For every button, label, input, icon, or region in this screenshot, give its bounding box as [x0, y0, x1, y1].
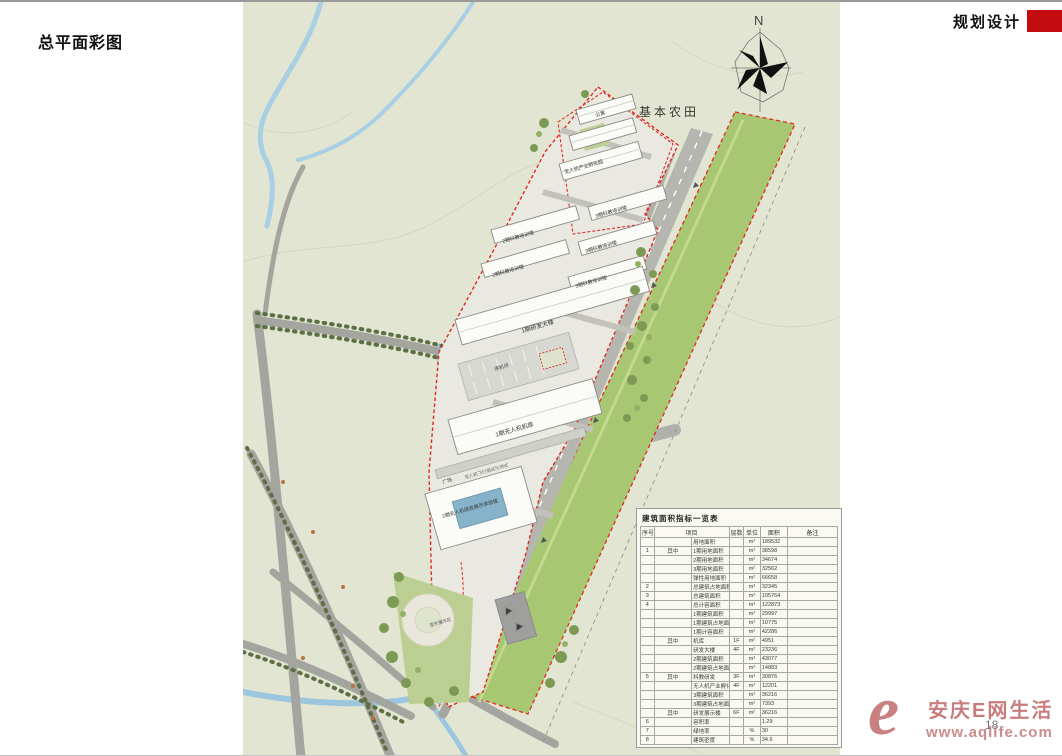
table-cell: [641, 556, 655, 565]
table-header: 序号项目层数单位面积备注: [641, 527, 838, 538]
table-cell: [654, 628, 692, 637]
table-cell: [729, 574, 744, 583]
table-cell: 建筑密度: [692, 736, 730, 745]
table-cell: [787, 565, 837, 574]
table-cell: 6: [641, 718, 655, 727]
table-cell: [654, 565, 692, 574]
table-cell: [654, 700, 692, 709]
page: 总平面彩图 规划设计: [0, 0, 1062, 756]
table-cell: 32345: [760, 583, 787, 592]
table-cell: [641, 700, 655, 709]
table-cell: [729, 718, 744, 727]
table-cell: 34.6: [760, 736, 787, 745]
table-cell: 1.29: [760, 718, 787, 727]
table-row: 1期计容面积m²42286: [641, 628, 838, 637]
table-cell: 4951: [760, 637, 787, 646]
table-cell: m²: [744, 610, 761, 619]
watermark: e 安庆E网生活 www.aqlife.com: [868, 686, 1062, 756]
table-cell: [654, 574, 692, 583]
table-row: 3期建筑占地面积m²7393: [641, 700, 838, 709]
table-cell: 绿地率: [692, 727, 730, 736]
table-cell: [729, 592, 744, 601]
table-cell: [729, 556, 744, 565]
red-accent-box: [1027, 10, 1062, 32]
table-cell: 1期建筑面积: [692, 610, 730, 619]
table-cell: 6F: [729, 709, 744, 718]
table-cell: [729, 727, 744, 736]
table-cell: 43077: [760, 655, 787, 664]
table-header-cell: 面积: [760, 527, 787, 538]
table-row: 用地面积m²189532: [641, 538, 838, 547]
table-cell: [641, 664, 655, 673]
table-cell: [641, 709, 655, 718]
table-cell: 29997: [760, 610, 787, 619]
table-row: 6容积率1.29: [641, 718, 838, 727]
table-cell: m²: [744, 583, 761, 592]
table-cell: m²: [744, 709, 761, 718]
table-cell: [641, 619, 655, 628]
table-cell: [654, 610, 692, 619]
table-cell: 总建筑面积: [692, 592, 730, 601]
table-cell: 36216: [760, 709, 787, 718]
table-cell: 34674: [760, 556, 787, 565]
table-row: 2期用地面积m²34674: [641, 556, 838, 565]
table-cell: [787, 655, 837, 664]
table-cell: m²: [744, 646, 761, 655]
table-row: 其中研发展示楼6Fm²36216: [641, 709, 838, 718]
table-cell: 7393: [760, 700, 787, 709]
table-cell: 105764: [760, 592, 787, 601]
table-cell: 4F: [729, 682, 744, 691]
table-cell: [654, 718, 692, 727]
table-cell: 14883: [760, 664, 787, 673]
table-cell: 总计容面积: [692, 601, 730, 610]
table-cell: 2期建筑面积: [692, 655, 730, 664]
table-cell: 容积率: [692, 718, 730, 727]
table-cell: [787, 727, 837, 736]
table-cell: [787, 682, 837, 691]
table-header-cell: 备注: [787, 527, 837, 538]
table-cell: m²: [744, 565, 761, 574]
header: 规划设计: [953, 10, 1062, 32]
table-cell: m²: [744, 682, 761, 691]
table-cell: 8: [641, 736, 655, 745]
table-cell: m²: [744, 574, 761, 583]
table-cell: [654, 664, 692, 673]
table-header-cell: 序号: [641, 527, 655, 538]
table-cell: m²: [744, 601, 761, 610]
table-cell: [654, 655, 692, 664]
table-cell: [729, 610, 744, 619]
table-cell: 其中: [654, 673, 692, 682]
table-header-cell: 层数: [729, 527, 744, 538]
table-cell: m²: [744, 592, 761, 601]
table-row: 3总建筑面积m²105764: [641, 592, 838, 601]
table-cell: [654, 736, 692, 745]
table-cell: 科教研发: [692, 673, 730, 682]
table-cell: m²: [744, 637, 761, 646]
table-cell: [654, 583, 692, 592]
table-cell: 38598: [760, 547, 787, 556]
table-cell: [787, 718, 837, 727]
table-cell: [787, 637, 837, 646]
table-cell: [787, 664, 837, 673]
table-row: 3期用地面积m²32562: [641, 565, 838, 574]
table-cell: [787, 673, 837, 682]
table-cell: [787, 601, 837, 610]
table-cell: 5: [641, 673, 655, 682]
table-cell: 1: [641, 547, 655, 556]
table-cell: [654, 538, 692, 547]
table-cell: 其中: [654, 637, 692, 646]
table-cell: [729, 565, 744, 574]
table-cell: 研发展示楼: [692, 709, 730, 718]
table-cell: m²: [744, 655, 761, 664]
table-cell: [729, 538, 744, 547]
table-cell: [654, 682, 692, 691]
table-row: 弹性用地面积m²66658: [641, 574, 838, 583]
table-cell: [787, 556, 837, 565]
table-cell: [729, 700, 744, 709]
table-cell: 弹性用地面积: [692, 574, 730, 583]
table-row: 2总建筑占地面积m²32345: [641, 583, 838, 592]
table-cell: 2期用地面积: [692, 556, 730, 565]
table-cell: 189532: [760, 538, 787, 547]
table-cell: 66658: [760, 574, 787, 583]
table-title: 建筑面积指标一览表: [642, 513, 838, 524]
table-cell: [729, 664, 744, 673]
table-cell: [787, 583, 837, 592]
table-cell: 1期建筑占地面积: [692, 619, 730, 628]
table-cell: [787, 592, 837, 601]
table-cell: 2期建筑占地面积: [692, 664, 730, 673]
table-cell: [787, 538, 837, 547]
table-cell: 1期用地面积: [692, 547, 730, 556]
table-cell: [787, 691, 837, 700]
table-cell: 30876: [760, 673, 787, 682]
table-cell: [729, 601, 744, 610]
table-cell: m²: [744, 619, 761, 628]
table-cell: [729, 547, 744, 556]
table-row: 其中机库1Fm²4951: [641, 637, 838, 646]
table-cell: 4: [641, 601, 655, 610]
table-cell: 12201: [760, 682, 787, 691]
table-cell: [641, 682, 655, 691]
table-cell: [654, 592, 692, 601]
table-cell: 2: [641, 583, 655, 592]
table-row: 5其中科教研发3Fm²30876: [641, 673, 838, 682]
table-cell: [654, 601, 692, 610]
table-cell: 3F: [729, 673, 744, 682]
table-cell: 10775: [760, 619, 787, 628]
table-row: 8建筑密度%34.6: [641, 736, 838, 745]
table-cell: 36216: [760, 691, 787, 700]
table-cell: [641, 565, 655, 574]
table-cell: 3: [641, 592, 655, 601]
table-cell: [641, 655, 655, 664]
table-cell: 32562: [760, 565, 787, 574]
table-cell: 7: [641, 727, 655, 736]
table-cell: 3期建筑面积: [692, 691, 730, 700]
table-cell: [787, 619, 837, 628]
table-cell: [641, 691, 655, 700]
table-cell: [654, 556, 692, 565]
table-cell: m²: [744, 628, 761, 637]
table-cell: [744, 718, 761, 727]
map-label: N: [754, 14, 763, 29]
table-cell: [641, 646, 655, 655]
page-title: 总平面彩图: [38, 29, 123, 53]
table-cell: [641, 628, 655, 637]
table-cell: 1期计容面积: [692, 628, 730, 637]
table-cell: m²: [744, 673, 761, 682]
table-cell: [787, 700, 837, 709]
watermark-e-logo: e: [868, 672, 899, 752]
table-cell: 4F: [729, 646, 744, 655]
table-row: 1其中1期用地面积m²38598: [641, 547, 838, 556]
table-row: 无人机产业孵化园4Fm²12201: [641, 682, 838, 691]
table-cell: %: [744, 736, 761, 745]
table-grid: 序号项目层数单位面积备注 用地面积m²1895321其中1期用地面积m²3859…: [640, 526, 838, 745]
table-cell: 总建筑占地面积: [692, 583, 730, 592]
table-cell: [641, 538, 655, 547]
table-cell: [654, 646, 692, 655]
table-cell: m²: [744, 664, 761, 673]
table-header-cell: 单位: [744, 527, 761, 538]
table-row: 2期建筑面积m²43077: [641, 655, 838, 664]
table-row: 7绿地率%30: [641, 727, 838, 736]
table-cell: [729, 736, 744, 745]
table-row: 研发大楼4Fm²23236: [641, 646, 838, 655]
header-label: 规划设计: [953, 11, 1021, 32]
table-cell: [787, 628, 837, 637]
table-cell: m²: [744, 556, 761, 565]
table-cell: 无人机产业孵化园: [692, 682, 730, 691]
table-cell: %: [744, 727, 761, 736]
table-cell: 用地面积: [692, 538, 730, 547]
watermark-url: www.aqlife.com: [926, 724, 1053, 741]
site-plan-map: N基本农田公寓无人机产业孵化园3期科教培训楼2期科教培训楼3期科教培训楼2期科教…: [243, 2, 840, 756]
map-label: 基本农田: [639, 106, 699, 120]
table-cell: [787, 610, 837, 619]
table-row: 2期建筑占地面积m²14883: [641, 664, 838, 673]
table-cell: 3期用地面积: [692, 565, 730, 574]
table-cell: 30: [760, 727, 787, 736]
table-cell: [787, 736, 837, 745]
table-cell: 机库: [692, 637, 730, 646]
table-cell: [787, 547, 837, 556]
table-cell: 23236: [760, 646, 787, 655]
table-cell: [787, 574, 837, 583]
table-cell: m²: [744, 547, 761, 556]
table-cell: [787, 709, 837, 718]
table-cell: 其中: [654, 709, 692, 718]
table-cell: [787, 646, 837, 655]
table-cell: m²: [744, 700, 761, 709]
table-cell: 3期建筑占地面积: [692, 700, 730, 709]
table-cell: [641, 637, 655, 646]
table-header-cell: 项目: [654, 527, 729, 538]
table-cell: 研发大楼: [692, 646, 730, 655]
table-row: 4总计容面积m²122873: [641, 601, 838, 610]
table-cell: [641, 610, 655, 619]
table-body: 用地面积m²1895321其中1期用地面积m²385982期用地面积m²3467…: [641, 538, 838, 745]
table-cell: 122873: [760, 601, 787, 610]
table-row: 1期建筑面积m²29997: [641, 610, 838, 619]
table-cell: 1F: [729, 637, 744, 646]
table-cell: [729, 583, 744, 592]
table-row: 3期建筑面积m²36216: [641, 691, 838, 700]
table-cell: [641, 574, 655, 583]
table-cell: [729, 619, 744, 628]
table-cell: m²: [744, 691, 761, 700]
table-cell: 42286: [760, 628, 787, 637]
watermark-site-name: 安庆E网生活: [928, 694, 1053, 723]
table-cell: m²: [744, 538, 761, 547]
table-row: 1期建筑占地面积m²10775: [641, 619, 838, 628]
table-cell: [654, 691, 692, 700]
table-cell: [729, 691, 744, 700]
area-index-table: 建筑面积指标一览表 序号项目层数单位面积备注 用地面积m²1895321其中1期…: [636, 508, 842, 748]
table-cell: [654, 727, 692, 736]
table-cell: 其中: [654, 547, 692, 556]
table-cell: [729, 628, 744, 637]
table-cell: [729, 655, 744, 664]
table-cell: [654, 619, 692, 628]
